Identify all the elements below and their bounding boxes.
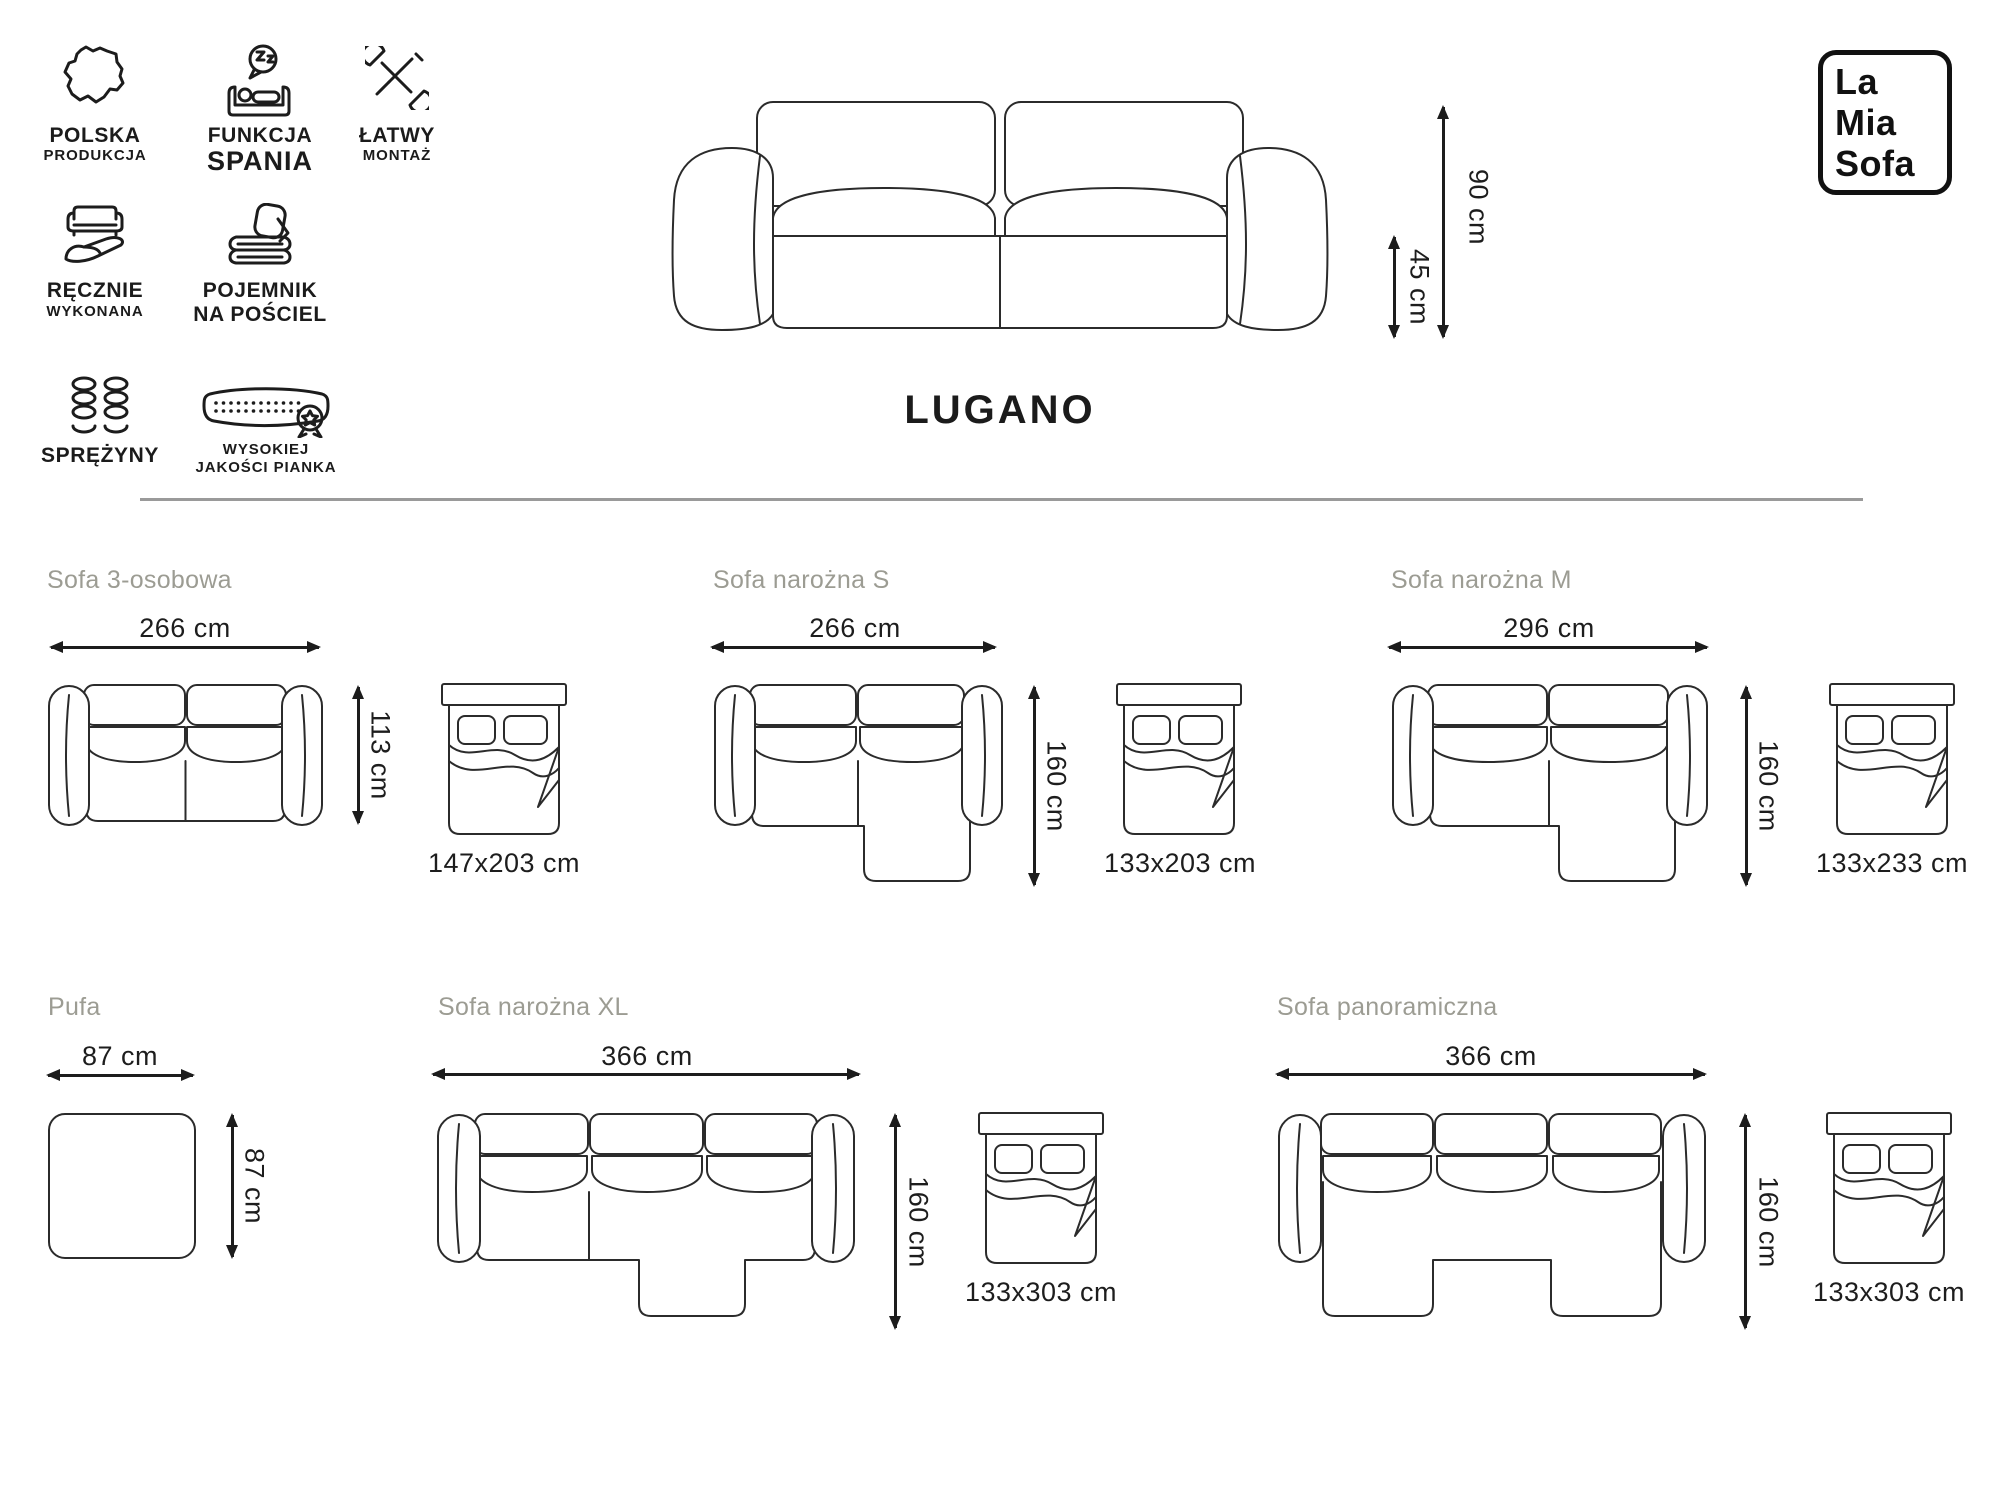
brand-logo: La Mia Sofa [1818,50,1952,195]
sofa-top-view-corner-xl [436,1112,856,1328]
poland-map-icon [60,45,126,111]
width-dimension-label: 266 cm [139,613,231,644]
feature-sublabel: JAKOŚCI PIANKA [146,459,386,476]
feature-label: ŁATWY [277,124,517,148]
easy-assembly-tools-icon [365,46,429,110]
width-dimension-label: 366 cm [601,1041,693,1072]
depth-dimension-label: 87 cm [239,1148,270,1224]
feature-sublabel: MONTAŻ [277,147,517,164]
depth-arrow [1033,687,1036,885]
width-dimension-label: 296 cm [1503,613,1595,644]
variant-name: Sofa narożna S [713,566,890,595]
sofa-top-view-corner [1391,683,1709,893]
handmade-icon [60,203,130,269]
width-dimension-label: 87 cm [82,1041,158,1072]
sleep-function-icon [223,43,295,119]
depth-dimension-label: 160 cm [1041,740,1072,832]
bed-size-label: 133x233 cm [1816,848,1968,879]
depth-arrow [894,1115,897,1328]
sofa-top-view-panoramic [1277,1112,1707,1328]
feature-label: WYSOKIEJ [146,441,386,458]
depth-dimension-label: 113 cm [365,710,396,800]
width-arrow [1277,1073,1705,1076]
pouf-top-view [47,1112,197,1260]
feature-label: POJEMNIK [140,279,380,303]
depth-arrow [357,687,360,823]
width-dimension-label: 366 cm [1445,1041,1537,1072]
foam-dots [214,401,300,413]
feature-sublabel: NA POŚCIEL [140,303,380,327]
depth-arrow [231,1115,234,1257]
bedding-storage-icon [226,203,294,269]
variant-name: Sofa panoramiczna [1277,993,1498,1022]
bed-icon [1116,683,1242,837]
brand-line: Mia [1835,102,1947,143]
brand-line: La [1835,61,1947,102]
depth-dimension-label: 160 cm [903,1176,934,1268]
variant-name: Sofa narożna M [1391,566,1572,595]
width-arrow [1389,646,1707,649]
main-seat-height-arrow [1393,237,1396,337]
brand-line: Sofa [1835,143,1947,184]
width-arrow [712,646,995,649]
bed-icon [441,683,567,837]
variant-name: Sofa 3-osobowa [47,566,232,595]
bed-icon [1826,1112,1952,1266]
depth-dimension-label: 160 cm [1753,740,1784,832]
product-title: LUGANO [904,388,1095,433]
depth-arrow [1744,1115,1747,1328]
depth-arrow [1745,687,1748,885]
bed-size-label: 133x303 cm [1813,1277,1965,1308]
main-height-arrow [1442,107,1445,337]
bed-size-label: 133x203 cm [1104,848,1256,879]
width-arrow [48,1074,193,1077]
springs-icon [67,375,133,435]
depth-dimension-label: 160 cm [1753,1176,1784,1268]
sofa-top-view [47,683,324,828]
width-arrow [51,646,319,649]
width-arrow [433,1073,859,1076]
bed-icon [1829,683,1955,837]
variant-name: Pufa [48,993,101,1022]
bed-icon [978,1112,1104,1266]
main-sofa-front-view [660,100,1340,340]
variant-name: Sofa narożna XL [438,993,629,1022]
bed-size-label: 147x203 cm [428,848,580,879]
spec-sheet-page: { "title": "LUGANO", "brand": {"line1": … [0,0,2000,1500]
section-divider [140,498,1863,501]
width-dimension-label: 266 cm [809,613,901,644]
main-seat-height-label: 45 cm [1404,249,1435,325]
main-height-label: 90 cm [1463,169,1494,245]
foam-quality-icon [200,380,332,438]
sofa-top-view-corner [713,683,1004,893]
bed-size-label: 133x303 cm [965,1277,1117,1308]
